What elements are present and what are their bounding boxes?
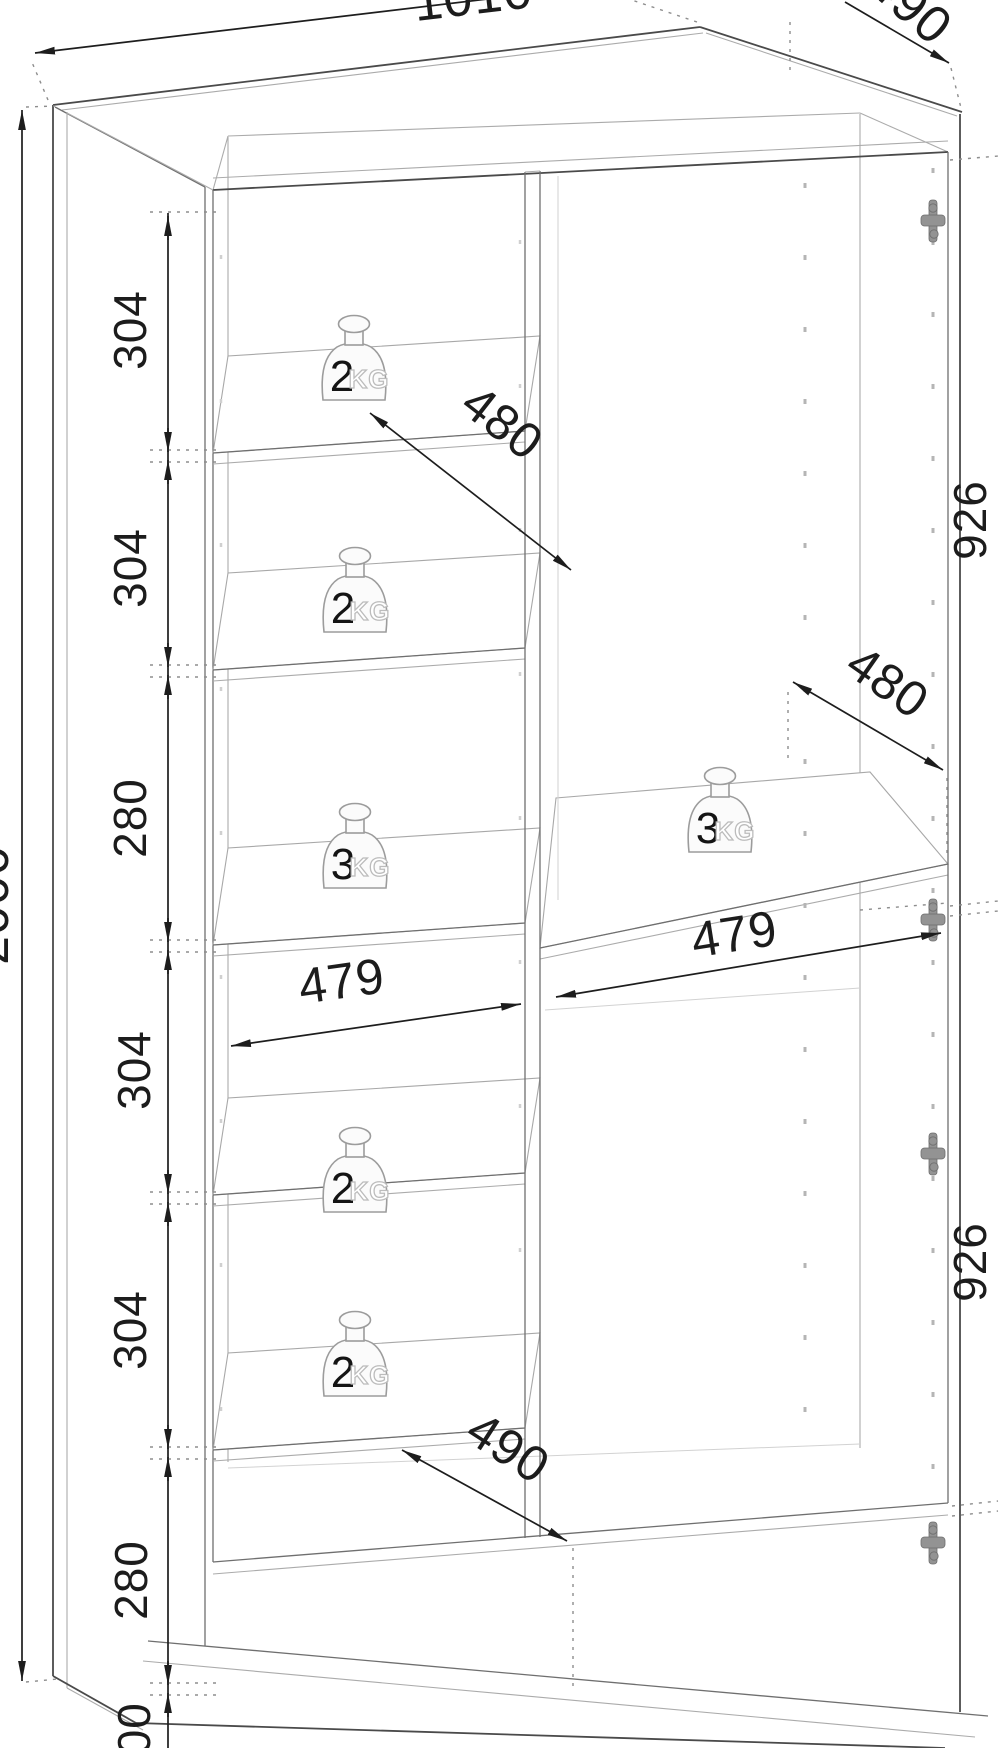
- dim-label-304: 304: [104, 1290, 156, 1370]
- hinge-icon: [921, 1133, 945, 1175]
- top-panel: [213, 113, 948, 190]
- weight-unit: KG: [350, 1176, 391, 1206]
- technical-drawing-canvas: 2 KG 2 KG 3 KG 2 KG 2 KG 3 KG 2000 1010: [0, 0, 1000, 1748]
- weight-unit: KG: [350, 852, 391, 882]
- height-dimension-chain: 304 304 280 304 304 280 100: [104, 212, 216, 1748]
- weight-unit: KG: [350, 1360, 391, 1390]
- dim-label-280: 280: [105, 1540, 157, 1620]
- dim-label-280: 280: [104, 778, 156, 858]
- weight-icon: 2 KG: [322, 316, 389, 402]
- weight-unit: KG: [715, 816, 756, 846]
- cabinet-top-face: [53, 27, 962, 190]
- weight-unit: KG: [350, 596, 391, 626]
- dim-label-total-height: 2000: [0, 845, 20, 965]
- dim-label-479: 479: [687, 900, 781, 969]
- base-plinth: [53, 1444, 988, 1748]
- weight-icon: 3 KG: [323, 804, 390, 890]
- dim-label-926: 926: [944, 480, 996, 560]
- dim-label-304: 304: [104, 290, 156, 370]
- dim-label-top-depth: 490: [857, 0, 963, 57]
- dim-label-304: 304: [108, 1030, 160, 1110]
- hinge-icon: [921, 200, 945, 242]
- dim-label-100: 100: [108, 1702, 160, 1748]
- weight-icon: 2 KG: [323, 548, 390, 634]
- dim-total-height: 2000: [0, 106, 58, 1682]
- drawing-page: 2 KG 2 KG 3 KG 2 KG 2 KG 3 KG 2000 1010: [0, 0, 1000, 1748]
- weight-icon: 2 KG: [323, 1312, 390, 1398]
- dim-label-926: 926: [944, 1222, 996, 1302]
- dim-label-304: 304: [104, 528, 156, 608]
- weight-icon: 3 KG: [688, 768, 755, 854]
- dim-label-top-width: 1010: [410, 0, 536, 33]
- weight-unit: KG: [349, 364, 390, 394]
- dim-top-depth: 490: [790, 0, 963, 108]
- dim-width-left: 479: [231, 947, 521, 1046]
- hinge-icon: [921, 1522, 945, 1564]
- dim-label-479: 479: [295, 947, 388, 1014]
- dim-top-width: 1010: [31, 0, 697, 100]
- right-side-panel: [948, 114, 960, 1712]
